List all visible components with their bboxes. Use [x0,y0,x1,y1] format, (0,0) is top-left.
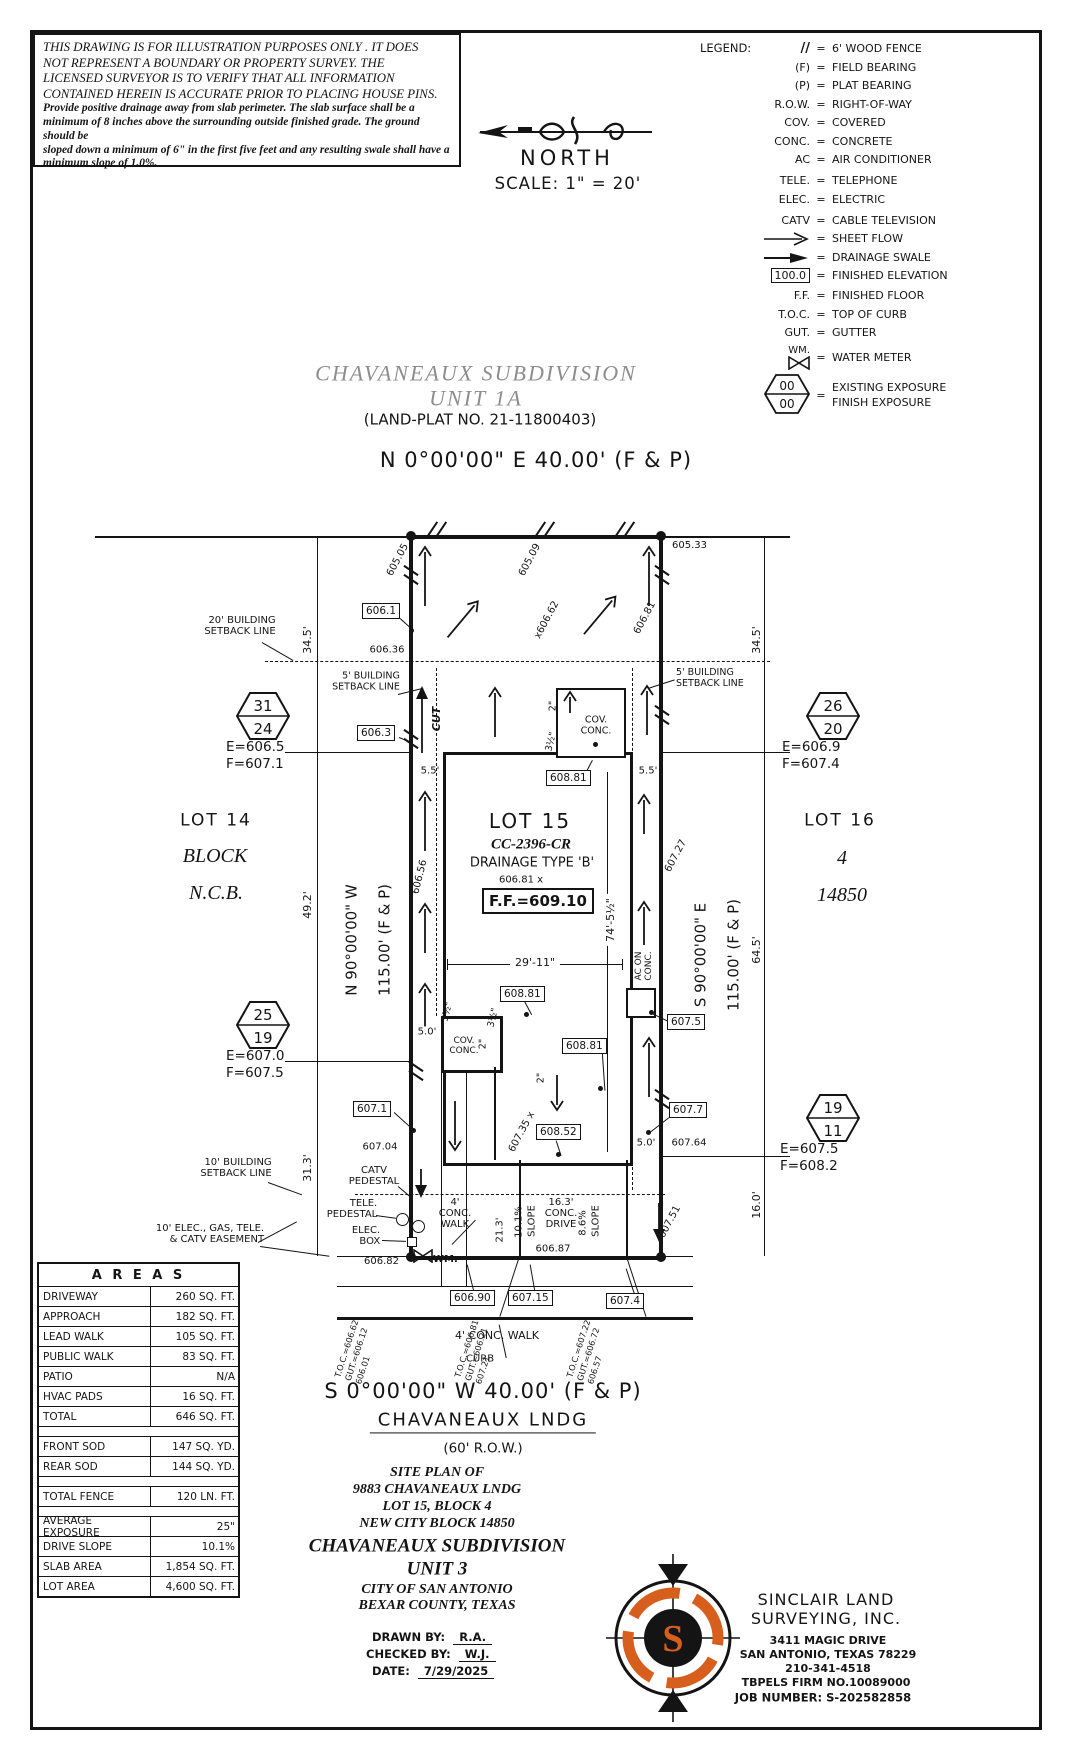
legend-item-electric: ELEC.=ELECTRIC [726,191,1026,208]
bearing-east-line2: 115.00' (F & P) [726,899,743,1011]
north-label: NORTH [520,147,614,171]
block-label: BLOCK [183,845,247,867]
sheet-flow-arrow [639,684,655,736]
dim-5-5-west: 5.5' [421,765,440,776]
disclaimer-box: THIS DRAWING IS FOR ILLUSTRATION PURPOSE… [33,33,461,167]
dim-5-0-east: 5.0' [637,1137,656,1148]
scale-label: SCALE: 1" = 20' [495,175,642,193]
dim-5-5-east: 5.5' [639,765,658,776]
titleblock-line: SITE PLAN OF [390,1465,484,1481]
legend-item-wood-fence: // =6' WOOD FENCE [726,40,1026,57]
catv-pedestal-label: CATV PEDESTAL [349,1165,399,1187]
spot-elevation: 606.82 [364,1256,399,1267]
legend-item-ac: AC=AIR CONDITIONER [726,151,1026,168]
north-arrow-icon [478,114,656,146]
surveyor-name-line2: SURVEYING, INC. [751,1610,901,1628]
lot-14-label: LOT 14 [180,811,252,830]
exposure-hexagon: 31 24 [236,692,290,740]
corner-pin-nw [406,531,416,541]
ac-on-conc-label: AC ON CONC. [634,951,654,980]
setback-line-10ft [355,1194,665,1195]
finished-elevation-icon: 100.0 [771,268,811,283]
setback-5-east-label: 5' BUILDING SETBACK LINE [676,668,744,689]
exposure-hexagon: 26 20 [806,692,860,740]
garage-wall-line [494,1067,496,1160]
bearing-west-line2: 115.00' (F & P) [377,884,394,996]
legend-item-row: R.O.W.=RIGHT-OF-WAY [726,96,1026,113]
sheet-flow-arrow [417,982,433,1030]
leader-dot [598,1086,603,1091]
sheet-flow-arrow [549,1074,565,1112]
surveyor-phone: 210-341-4518 [785,1663,871,1675]
reference-line-east-2 [662,1156,790,1157]
table-row: FRONT SOD147 SQ. YD. [39,1436,238,1456]
fence-hash [532,521,556,537]
corner-pin-ne [656,531,666,541]
legend-item-exposure: 0000 = EXISTING EXPOSUREFINISH EXPOSURE [726,374,1026,417]
bearing-south: S 0°00'00" W 40.00' (F & P) [324,1380,641,1404]
finished-elevation-box: 608.52 [536,1124,581,1140]
legend-item-field-bearing: (F)=FIELD BEARING [726,59,1026,76]
ncb-14850-label: 14850 [817,884,867,906]
legend-title: LEGEND: [700,42,751,55]
property-line-east [659,535,663,1258]
surveyor-address-line2: SAN ANTONIO, TEXAS 78229 [740,1649,917,1661]
table-row: PUBLIC WALK83 SQ. FT. [39,1346,238,1366]
leader-dot [411,1128,416,1133]
finished-elevation-box: 607.1 [353,1101,391,1117]
titleblock-unit: UNIT 3 [407,1558,468,1579]
table-separator [39,1476,238,1486]
finished-elevation-box: 606.3 [357,725,395,741]
subdivision-title-line2: UNIT 1A [429,387,523,412]
dim-5-0-west: 5.0' [418,1026,437,1037]
table-row: PATION/A [39,1366,238,1386]
finished-elevation-box: 608.81 [500,986,545,1002]
svg-text:25: 25 [253,1006,272,1024]
drainage-swale-arrow [413,1168,429,1200]
disclaimer-paragraph-1: THIS DRAWING IS FOR ILLUSTRATION PURPOSE… [43,40,451,102]
legend-item-plat-bearing: (P)=PLAT BEARING [726,77,1026,94]
finished-elevation-box: 606.90 [450,1290,495,1306]
titleblock-subdivision: CHAVANEAUX SUBDIVISION [309,1535,565,1556]
drainage-type-label: DRAINAGE TYPE 'B' [466,857,598,872]
dim-49-2-west: 49.2' [302,891,314,919]
spot-elevation: 606.81 x [499,874,543,885]
elec-box-label: ELEC. BOX [352,1225,380,1247]
table-separator [39,1426,238,1436]
legend-item-toc: T.O.C.=TOP OF CURB [726,306,1026,323]
exposure-finish-value: F=607.1 [226,757,284,772]
surveyor-name-line1: SINCLAIR LAND [758,1591,895,1609]
surveyor-firm-number: TBPELS FIRM NO.10089000 [742,1677,911,1689]
titleblock-line: 9883 CHAVANEAUX LNDG [353,1482,521,1498]
legend-item-sheet-flow: =SHEET FLOW [726,230,1026,247]
legend-item-catv: CATV=CABLE TELEVISION [726,212,1026,229]
finished-elevation-box: 607.15 [508,1290,553,1306]
titleblock-city: CITY OF SAN ANTONIO [361,1582,512,1598]
wm-label: WM. [433,1254,458,1265]
tele-pedestal-label: TELE. PEDESTAL [327,1198,377,1220]
legend-item-covered: COV.=COVERED [726,114,1026,131]
setback-5-west-label: 5' BUILDING SETBACK LINE [332,671,400,692]
table-row: AVERAGE EXPOSURE25" [39,1516,238,1536]
setback-10-label: 10' BUILDING SETBACK LINE [200,1157,271,1179]
finished-elevation-box: 606.1 [362,603,400,619]
ncb-label: N.C.B. [189,882,243,904]
cov-conc-rear-label: COV. CONC. [581,715,612,736]
setback-20-label: 20' BUILDING SETBACK LINE [204,615,275,637]
drive-slope-word: SLOPE [526,1205,537,1237]
lot-16-label: LOT 16 [804,811,876,830]
legend-item-gutter: GUT.=GUTTER [726,324,1026,341]
bearing-north: N 0°00'00" E 40.00' (F & P) [380,449,692,473]
dim-2in-rear: 2" [549,701,560,711]
table-row: APPROACH182 SQ. FT. [39,1306,238,1326]
land-plat-number: (LAND-PLAT NO. 21-11800403) [364,412,596,429]
dim-16-0-east: 16.0' [751,1191,763,1219]
table-row: TOTAL646 SQ. FT. [39,1406,238,1426]
sinclair-logo: S [600,1552,746,1724]
surveyor-address-line1: 3411 MAGIC DRIVE [770,1635,887,1647]
svg-text:31: 31 [253,697,272,715]
fence-hash [612,521,636,537]
sheet-flow-arrow [641,1036,657,1098]
svg-text:19: 19 [823,1099,842,1117]
finished-elevation-box: 607.7 [669,1102,707,1118]
table-row: DRIVE SLOPE10.1% [39,1536,238,1556]
job-number: JOB NUMBER: S-202582858 [735,1692,911,1705]
areas-table-title: A R E A S [39,1264,238,1286]
table-row: LOT AREA4,600 SQ. FT. [39,1576,238,1596]
subdivision-title-line1: CHAVANEAUX SUBDIVISION [315,362,637,387]
drive-slope-pct: 10.1% [513,1206,524,1238]
legend-item-telephone: TELE.=TELEPHONE [726,172,1026,189]
spot-elevation: 607.04 [363,1141,398,1152]
exposure-hexagon-icon: 0000 [764,374,810,414]
setback-line-20ft [265,661,770,662]
spot-elevation: 606.36 [370,644,405,655]
finished-elevation-box: 607.4 [606,1293,644,1309]
sheet-flow-arrow [447,1100,463,1152]
areas-table: A R E A S DRIVEWAY260 SQ. FT. APPROACH18… [37,1262,240,1598]
sheet-flow-arrow [417,545,433,607]
exposure-existing-value: E=607.0 [226,1049,285,1064]
cc-number-label: CC-2396-CR [487,837,575,854]
reference-line-west-1 [285,752,411,753]
fence-hash [424,521,448,537]
dim-2in-mid: 2" [537,1073,548,1083]
apron-slope-pct: 8.6% [577,1210,588,1235]
table-row: LEAD WALK105 SQ. FT. [39,1326,238,1346]
svg-text:00: 00 [779,397,794,411]
lot-15-label: LOT 15 [485,810,575,832]
legend-item-drainage-swale: =DRAINAGE SWALE [726,249,1026,266]
svg-text:11: 11 [823,1122,842,1140]
sheet-flow-arrow [636,793,652,835]
svg-text:20: 20 [823,720,842,738]
driveway-edge-right [626,1160,628,1258]
finished-floor-box: F.F.=609.10 [482,888,594,914]
house-width-dim: 29'-11" [510,957,560,969]
spot-elevation: 605.33 [672,540,707,551]
exposure-hexagon: 19 11 [806,1094,860,1142]
easement-label: 10' ELEC., GAS, TELE. & CATV EASEMENT [156,1223,264,1245]
svg-text:19: 19 [253,1029,272,1047]
exposure-hexagon: 25 19 [236,1001,290,1049]
svg-text:00: 00 [779,379,794,393]
dimension-line-west [317,537,318,1256]
date-field: DATE: 7/29/2025 [372,1652,494,1678]
finished-elevation-box: 608.81 [562,1038,607,1054]
drainage-swale-icon [726,251,810,264]
table-row: SLAB AREA1,854 SQ. FT. [39,1556,238,1576]
table-row: REAR SOD144 SQ. YD. [39,1456,238,1476]
conc-drive-label: 16.3' CONC. DRIVE [545,1197,578,1231]
bearing-west-line1: N 90°00'00" W [344,884,361,995]
exposure-existing-value: E=606.9 [782,740,841,755]
cut-label: CUT [431,707,443,732]
property-line-west [409,535,413,1258]
finished-elevation-box: 607.5 [667,1014,705,1030]
sheet-flow-arrow [417,902,433,954]
sheet-flow-arrow [636,900,652,946]
elec-box-symbol [407,1237,417,1247]
site-plan-sheet: { "colors": {"accent": "#d65f1e", "title… [0,0,1066,1754]
house-length-dim: 74'-5½" [605,894,617,946]
legend-item-finished-elevation: 100.0 =FINISHED ELEVATION [726,267,1026,284]
table-row: HVAC PADS16 SQ. FT. [39,1386,238,1406]
corner-pin-se [656,1252,666,1262]
water-meter-icon [413,1249,433,1263]
street-name: CHAVANEAUX LNDG [370,1410,596,1433]
reference-line-east-1 [662,752,790,753]
table-row: DRIVEWAY260 SQ. FT. [39,1286,238,1306]
table-row: TOTAL FENCE120 LN. FT. [39,1486,238,1506]
sheet-flow-arrow [487,686,503,738]
tele-pedestal-symbol [396,1213,409,1226]
bearing-east-line1: S 90°00'00" E [693,903,710,1007]
exposure-finish-value: F=608.2 [780,1159,838,1174]
exposure-existing-value: E=607.5 [780,1142,839,1157]
dimension-line-east [764,537,765,1256]
svg-text:24: 24 [253,720,272,738]
exposure-existing-value: E=606.5 [226,740,285,755]
finished-elevation-box: 608.81 [546,770,591,786]
dim-34-5-east: 34.5' [751,626,763,654]
water-meter-icon [788,356,810,370]
sheet-flow-arrow [562,690,578,714]
legend-item-water-meter: WM. =WATER METER [726,343,1026,373]
leader-dot [556,1152,561,1157]
street-row: (60' R.O.W.) [443,1441,522,1456]
sheet-flow-icon [726,232,810,246]
sheet-flow-arrow [641,545,657,607]
dim-31-3-west: 31.3' [302,1154,314,1182]
front-line-extension-right [662,1256,693,1257]
dim-2in-front: 2" [479,1039,490,1049]
fence-hash [408,1058,424,1082]
titleblock-line: LOT 15, BLOCK 4 [383,1499,492,1515]
leader-dot [409,628,414,633]
reference-line-west-2 [285,1061,411,1062]
leader-dot [649,1010,654,1015]
dim-34-5-west: 34.5' [302,626,314,654]
extension-line-rear-right [662,536,790,538]
legend-item-ff: F.F.=FINISHED FLOOR [726,287,1026,304]
curb-line [337,1317,693,1320]
dim-64-5-east: 64.5' [751,936,763,964]
exposure-finish-value: F=607.4 [782,757,840,772]
apron-slope-word: SLOPE [590,1205,601,1237]
leader-dot [593,742,598,747]
titleblock-line: NEW CITY BLOCK 14850 [359,1516,514,1532]
spot-elevation: 606.87 [536,1243,571,1254]
legend-item-concrete: CONC.=CONCRETE [726,133,1026,150]
svg-text:S: S [662,1618,683,1660]
cov-conc-front-label: COV. CONC. [449,1036,478,1056]
disclaimer-paragraph-2: Provide positive drainage away from slab… [43,102,451,170]
sheet-flow-arrow [417,790,433,852]
lead-walk-label: 4' CONC. WALK [439,1197,472,1231]
titleblock-county: BEXAR COUNTY, TEXAS [358,1598,515,1614]
drainage-swale-arrow [414,684,430,754]
catv-pedestal-symbol [412,1220,425,1233]
block-4-label: 4 [837,847,847,869]
leader-dot [646,1130,651,1135]
svg-text:26: 26 [823,697,842,715]
spot-elevation: 607.64 [672,1137,707,1148]
dim-21-3: 21.3' [494,1217,505,1242]
extension-line-rear-left [95,536,411,538]
public-walk-edge [337,1286,693,1287]
exposure-finish-value: F=607.5 [226,1066,284,1081]
leader-dot [524,1012,529,1017]
fence-hash [654,702,670,726]
legend: // =6' WOOD FENCE (F)=FIELD BEARING (P)=… [726,40,1026,419]
